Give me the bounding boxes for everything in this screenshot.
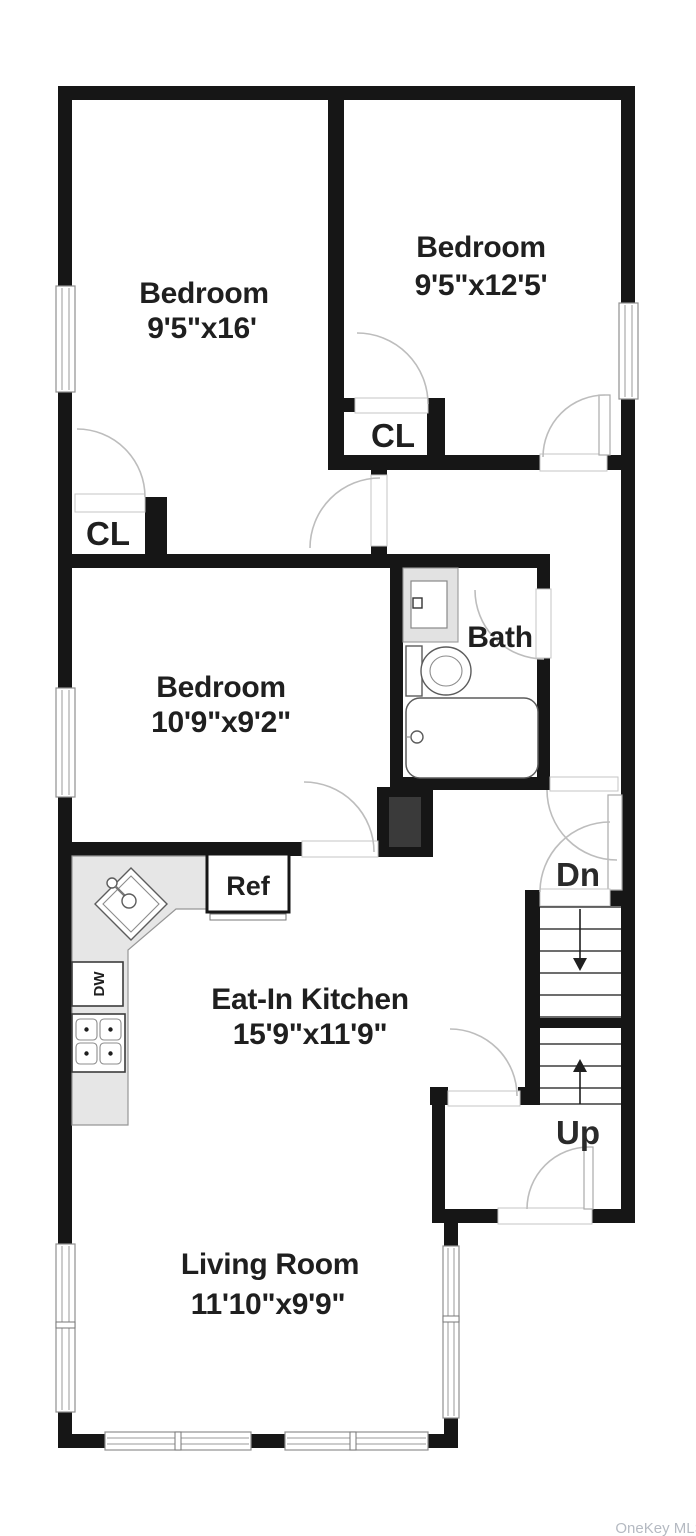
vanity-icon bbox=[403, 568, 458, 642]
door-front-entry bbox=[498, 1147, 593, 1224]
window-living-bottom-right bbox=[285, 1432, 428, 1450]
window-living-left bbox=[56, 1244, 75, 1412]
floorplan-drawing: Bedroom 9'5"x16' Bedroom 9'5"x12'5' Bedr… bbox=[0, 0, 696, 1536]
stairs-down-label: Dn bbox=[556, 856, 600, 893]
bedroom-middle-name: Bedroom bbox=[156, 671, 286, 704]
bedroom-top-left-dims: 9'5"x16' bbox=[147, 312, 257, 345]
door-hallway bbox=[310, 475, 387, 548]
window-bedroom-middle-left bbox=[56, 688, 75, 797]
window-living-right bbox=[443, 1246, 459, 1418]
toilet-icon bbox=[406, 646, 471, 696]
stove-icon bbox=[72, 1014, 125, 1072]
door-bedroom-middle bbox=[302, 782, 378, 857]
closet-lower-label: CL bbox=[86, 515, 130, 552]
floorplan-page: Bedroom 9'5"x16' Bedroom 9'5"x12'5' Bedr… bbox=[0, 0, 696, 1536]
bedroom-top-left-name: Bedroom bbox=[139, 277, 269, 310]
kitchen-name: Eat-In Kitchen bbox=[211, 983, 408, 1016]
door-entry-kitchen bbox=[448, 1029, 520, 1106]
stairs-down-icon bbox=[540, 907, 621, 1017]
bedroom-top-right-dims: 9'5"x12'5' bbox=[415, 269, 548, 302]
closet-upper-label: CL bbox=[371, 417, 415, 454]
chimney-shaft bbox=[377, 787, 433, 857]
stairs-up-icon bbox=[540, 1044, 621, 1104]
window-bedroom1-left bbox=[56, 286, 75, 392]
window-living-bottom-left bbox=[105, 1432, 251, 1450]
living-room-name: Living Room bbox=[181, 1248, 359, 1281]
watermark-text: OneKey MLS bbox=[615, 1520, 696, 1536]
stairs-up-label: Up bbox=[556, 1114, 600, 1151]
living-room-dims: 11'10"x9'9" bbox=[191, 1288, 346, 1321]
window-bedroom2-right bbox=[619, 303, 638, 399]
bathtub-icon bbox=[406, 698, 538, 778]
kitchen-dims: 15'9"x11'9" bbox=[233, 1018, 388, 1051]
bath-label: Bath bbox=[467, 621, 532, 654]
door-closet-upper bbox=[355, 333, 428, 413]
dishwasher-label: DW bbox=[91, 971, 108, 997]
refrigerator-label: Ref bbox=[226, 871, 271, 901]
bedroom-middle-dims: 10'9"x9'2" bbox=[151, 706, 291, 739]
door-closet-lower bbox=[75, 429, 145, 512]
bedroom-top-right-name: Bedroom bbox=[416, 231, 546, 264]
door-bedroom2 bbox=[540, 395, 610, 471]
